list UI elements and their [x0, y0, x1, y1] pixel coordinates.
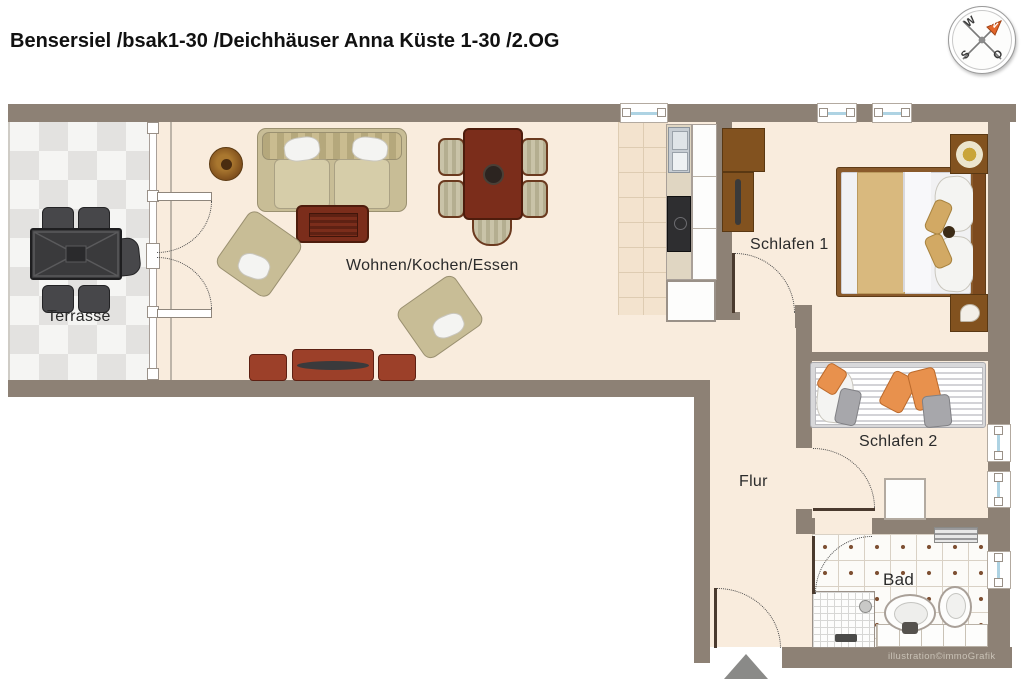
page-title: Bensersiel /bsak1-30 /Deichhäuser Anna K…	[10, 30, 560, 53]
bedroom2-window-1	[987, 424, 1011, 462]
table-bowl	[483, 164, 504, 185]
bed-blanket	[857, 172, 905, 294]
tv	[297, 361, 369, 370]
compass-rose: W S O N	[948, 6, 1016, 74]
wardrobe-handle	[735, 179, 741, 225]
sink-faucet	[902, 622, 918, 634]
coffee-table	[296, 205, 369, 243]
wall-bedroom1-bedroom2-divider	[796, 352, 1008, 361]
toilet	[938, 586, 972, 628]
sideboard-left	[249, 354, 287, 381]
kitchen-sink	[668, 127, 690, 173]
plant-basket	[209, 147, 243, 181]
bed-double	[836, 167, 986, 297]
cabinet-bedroom2	[884, 478, 926, 520]
table-lamp	[956, 141, 983, 168]
dining-chair	[438, 138, 465, 176]
floorplan-page: Bensersiel /bsak1-30 /Deichhäuser Anna K…	[0, 0, 1024, 683]
shower-drain	[835, 634, 857, 642]
headboard	[973, 168, 985, 296]
sideboard-right	[378, 354, 416, 381]
dining-chair	[521, 180, 548, 218]
terrace-door-leaf-top	[157, 192, 212, 201]
terrace-table	[30, 228, 122, 280]
illustrator-watermark: illustration©immoGrafik	[888, 651, 996, 662]
wall-top	[8, 104, 1016, 122]
bedroom1-window-2	[872, 103, 912, 123]
sofa	[257, 128, 407, 212]
kitchen-cabinets	[692, 124, 717, 280]
wall-bedroom1-door-stub-left	[716, 312, 740, 320]
dining-chair	[438, 180, 465, 218]
dining-chair	[521, 138, 548, 176]
terrace-door-leaf-bottom	[157, 309, 212, 318]
kitchen-cooktop	[667, 196, 691, 252]
dining-table	[463, 128, 523, 220]
glass-mullion	[147, 368, 159, 380]
wall-bedroom2-bath-left	[796, 518, 815, 534]
nightstand-1	[950, 134, 988, 174]
terrace-table-top	[32, 230, 120, 278]
room-label-bedroom2: Schlafen 2	[859, 433, 938, 451]
entrance-arrow	[724, 654, 768, 679]
glass-mullion	[147, 122, 159, 134]
kitchen-fridge	[666, 280, 716, 322]
bed2-cushion-gray	[921, 394, 952, 429]
wardrobe-bedroom1-top	[722, 128, 765, 172]
room-label-bathroom: Bad	[883, 570, 914, 590]
towel-radiator	[934, 527, 978, 543]
room-label-terrace: Terrasse	[47, 308, 111, 326]
room-label-hallway: Flur	[739, 473, 768, 491]
bedroom1-window-1	[817, 103, 857, 123]
wall-hall-left	[694, 397, 710, 663]
kitchen-tiled-floor	[618, 122, 668, 315]
wall-living-bottom	[8, 380, 710, 397]
shower	[812, 591, 875, 648]
nightstand-2	[950, 294, 988, 332]
wardrobe-bedroom1-bottom	[722, 172, 754, 232]
room-label-living: Wohnen/Kochen/Essen	[346, 257, 519, 275]
bed-single	[810, 362, 986, 428]
bedroom2-window-2	[987, 471, 1011, 508]
tv-sideboard	[292, 349, 374, 381]
compass-needles	[949, 7, 1015, 73]
bedroom2-door-leaf	[813, 508, 875, 511]
room-label-bedroom1: Schlafen 1	[750, 236, 829, 254]
shower-head	[859, 600, 872, 613]
bathroom-window	[987, 551, 1011, 589]
kitchen-window	[620, 103, 668, 123]
